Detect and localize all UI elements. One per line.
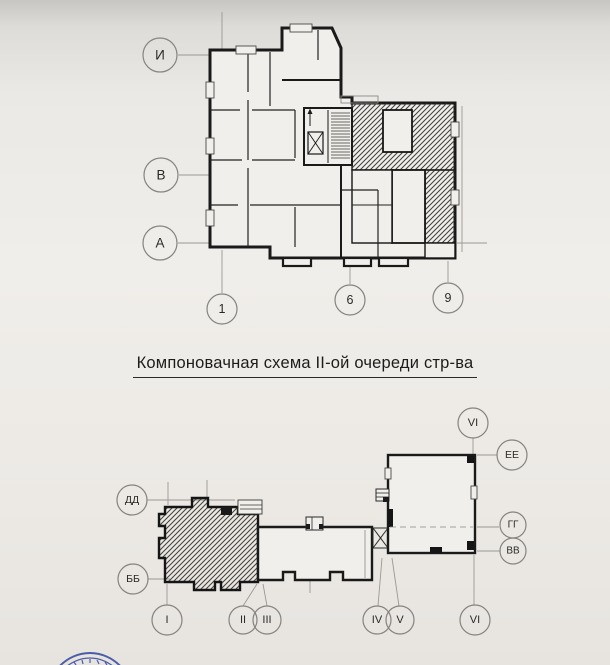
svg-text:ВВ: ВВ bbox=[506, 546, 520, 557]
hatched-wing-room bbox=[352, 170, 392, 243]
svg-text:IV: IV bbox=[372, 614, 383, 626]
svg-text:V: V bbox=[396, 614, 404, 626]
wall-pier bbox=[388, 509, 393, 527]
axis-marker-row-a: А bbox=[143, 226, 177, 260]
site-layout-plan: ДД ББ ЕЕ ГГ ВВ VI bbox=[117, 408, 527, 635]
axis-marker-col-6: 6 bbox=[335, 285, 365, 315]
svg-text:VI: VI bbox=[468, 417, 478, 429]
axis-marker-bb: ББ bbox=[118, 564, 148, 594]
svg-text:ДД: ДД bbox=[125, 494, 139, 506]
drawing-title: Компоновачная схема II-ой очереди стр-ва bbox=[0, 354, 610, 378]
upper-plan-hatched-section bbox=[352, 103, 455, 258]
svg-text:I: I bbox=[165, 614, 168, 626]
axis-marker-col-1: 1 bbox=[207, 294, 237, 324]
wall-pier bbox=[467, 541, 474, 550]
svg-text:ГГ: ГГ bbox=[508, 520, 519, 531]
middle-building bbox=[258, 517, 372, 580]
svg-text:ББ: ББ bbox=[126, 573, 140, 585]
axis-marker-col-9: 9 bbox=[433, 283, 463, 313]
svg-text:В: В bbox=[156, 168, 165, 183]
balconies bbox=[283, 258, 408, 266]
window-opening bbox=[385, 468, 391, 479]
axis-marker-dd: ДД bbox=[117, 485, 147, 515]
svg-text:9: 9 bbox=[445, 291, 452, 305]
axis-marker-row-i: И bbox=[143, 38, 177, 72]
axis-marker-ee: ЕЕ bbox=[497, 440, 527, 470]
axis-marker-vv: ВВ bbox=[500, 538, 526, 564]
plan-drawings: И В А 1 6 9 bbox=[0, 0, 610, 665]
wall-pier bbox=[221, 507, 232, 515]
svg-text:II: II bbox=[240, 614, 246, 626]
round-stamp bbox=[45, 653, 135, 665]
window-opening bbox=[471, 486, 477, 499]
stair-core bbox=[304, 108, 352, 165]
hatched-wing-room bbox=[383, 110, 412, 152]
axis-marker-v: V bbox=[386, 606, 414, 634]
wall-pier bbox=[467, 456, 474, 463]
hatched-wing-room bbox=[392, 170, 425, 243]
svg-text:И: И bbox=[155, 48, 165, 63]
axis-marker-iv: IV bbox=[363, 606, 391, 634]
axis-marker-i: I bbox=[152, 605, 182, 635]
upper-floor-plan: И В А 1 6 9 bbox=[143, 12, 487, 324]
svg-text:6: 6 bbox=[347, 293, 354, 307]
entrance-steps bbox=[376, 489, 389, 502]
axis-marker-vi-bottom: VI bbox=[460, 605, 490, 635]
axis-marker-row-v: В bbox=[144, 158, 178, 192]
scanned-floor-plan-sheet: И В А 1 6 9 bbox=[0, 0, 610, 665]
svg-text:ЕЕ: ЕЕ bbox=[505, 449, 519, 461]
porch-canopy bbox=[238, 500, 262, 514]
svg-text:1: 1 bbox=[219, 302, 226, 316]
svg-text:VI: VI bbox=[470, 614, 480, 626]
axis-marker-gg: ГГ bbox=[500, 512, 526, 538]
axis-marker-vi-top: VI bbox=[458, 408, 488, 438]
right-building bbox=[376, 455, 477, 553]
wall-pier bbox=[430, 547, 442, 553]
drawing-title-text: Компоновачная схема II-ой очереди стр-ва bbox=[133, 354, 478, 378]
svg-text:III: III bbox=[262, 614, 271, 626]
svg-text:А: А bbox=[155, 236, 164, 251]
left-hatched-building bbox=[159, 498, 262, 590]
